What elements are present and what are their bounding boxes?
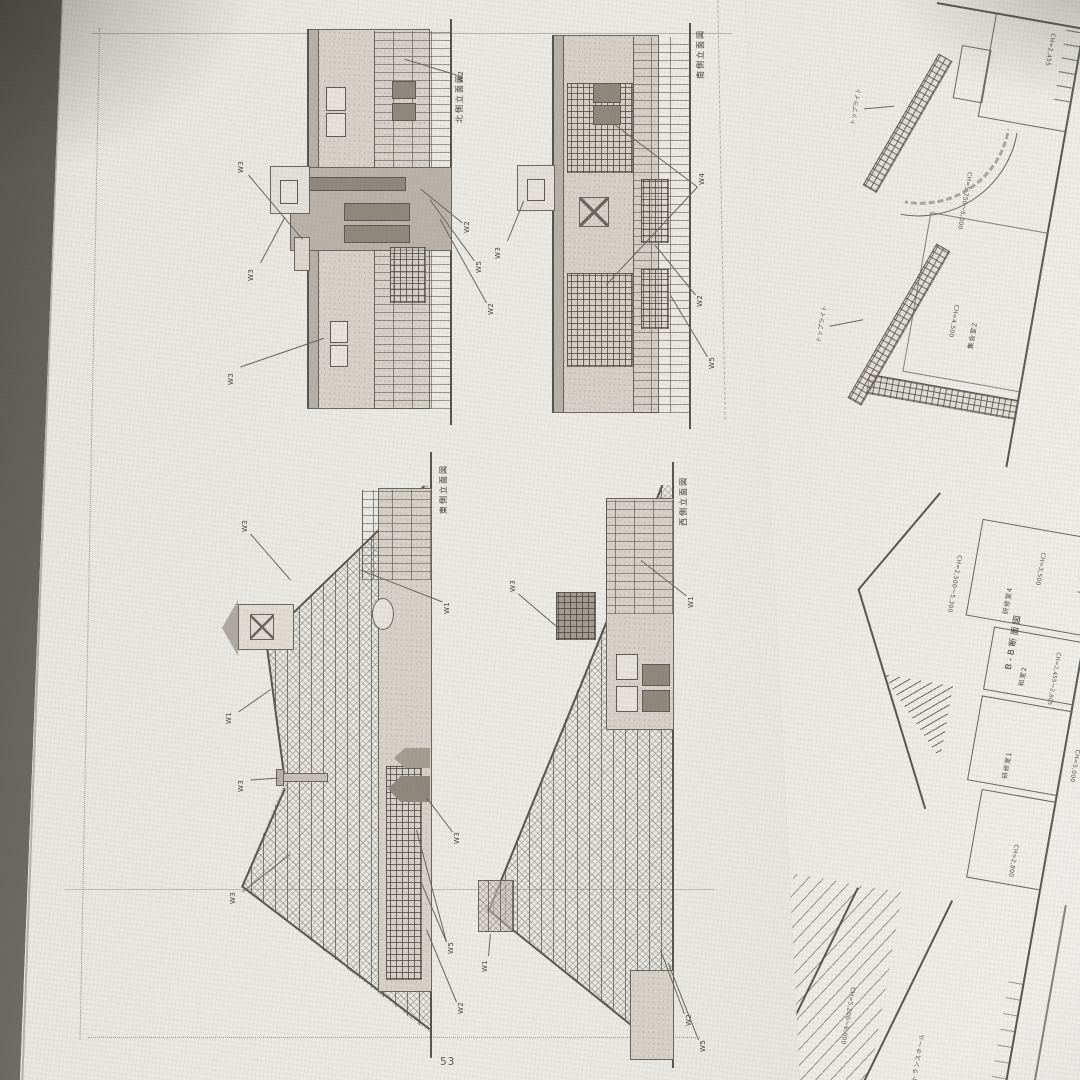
stacked-page-edge-line: [21, 0, 63, 1080]
window-band: [386, 766, 422, 980]
callout-label: W3: [238, 780, 245, 792]
page-number: 53: [440, 1056, 455, 1068]
hall-room: [902, 212, 1048, 392]
ground-line: [689, 23, 691, 429]
callout-label: W1: [444, 602, 451, 614]
callout-label: W3: [248, 269, 255, 281]
leader-line: [240, 338, 324, 368]
window-strip: [300, 177, 406, 191]
leader-line: [405, 59, 457, 76]
staircase: [869, 674, 953, 759]
gable-roof-hatched: [484, 485, 674, 1060]
margin-dotted-line-vertical: [80, 28, 100, 1040]
building-wall: [561, 35, 659, 413]
leader-line: [429, 199, 474, 261]
leader-line: [426, 930, 457, 1002]
leader-line: [640, 560, 686, 596]
window: [392, 81, 416, 99]
flat-roof-parapet: [307, 29, 319, 409]
section-drawing-a: トップライト トップライト CH=5,750〜5,000 CH=4,500 集会…: [743, 0, 1080, 463]
callout-label: W1: [226, 712, 233, 724]
elevation-title: 東側立面図: [440, 464, 448, 514]
elevation-title: 北側立面図: [456, 73, 464, 123]
footing-ticks: [986, 971, 1026, 1080]
roof-edge-line: [486, 908, 674, 1060]
window: [642, 664, 670, 686]
callout-label: W2: [488, 303, 495, 315]
window: [616, 686, 638, 712]
leader-line: [250, 778, 278, 781]
callout-label: W3: [230, 892, 237, 904]
window: [330, 321, 348, 343]
book-pages: 北側立面図 W3 W3 W3 W2 W2 W5 W2: [0, 0, 1080, 1080]
ground-line: [450, 19, 452, 425]
chimney: [478, 880, 514, 932]
leader-line: [440, 219, 487, 303]
window: [326, 113, 346, 137]
leader-line: [426, 797, 453, 832]
callout-label: W4: [699, 173, 706, 185]
penthouse: [517, 165, 555, 211]
pentagon-door: [388, 776, 430, 802]
callout-label: W2: [458, 71, 465, 83]
lower-ground-line: [1023, 905, 1066, 1080]
leader-line: [615, 125, 698, 188]
entrance-core: [290, 167, 452, 251]
leader-line: [670, 295, 708, 357]
louver-band: [633, 37, 690, 413]
callout-label: W3: [242, 520, 249, 532]
roof-edge-line: [241, 788, 285, 888]
roof-tower-gable: [222, 600, 238, 656]
vent-pipe-cap: [276, 769, 284, 786]
building-wall: [316, 29, 430, 409]
roof-edge-line: [241, 886, 430, 1030]
callout-label: トップライト: [850, 88, 862, 126]
callout-label: W3: [510, 580, 517, 592]
diamond-window: [579, 197, 609, 227]
window-grid: [641, 179, 669, 243]
leader-line: [660, 950, 685, 1014]
leader-line: [260, 217, 285, 263]
window: [616, 654, 638, 680]
callout-label: W5: [700, 1040, 707, 1052]
callout-label: W5: [476, 261, 483, 273]
elevation-title: 西側立面図: [680, 476, 688, 526]
gable-roof-hatched: [238, 485, 432, 1035]
ground-line: [430, 452, 432, 1058]
callout-label: W3: [238, 161, 245, 173]
leader-line: [248, 175, 303, 240]
room-box: [967, 695, 1073, 796]
callout-label: W2: [697, 295, 704, 307]
curtain-wall-grid: [567, 83, 633, 173]
window: [593, 83, 621, 103]
photo-of-open-book: 北側立面図 W3 W3 W3 W2 W2 W5 W2: [0, 0, 1080, 1080]
window-grid: [390, 247, 426, 303]
canopy: [294, 237, 310, 271]
dimension-text: CH=5,000: [1068, 749, 1080, 783]
roof-tower: [238, 604, 294, 650]
oval-window: [372, 598, 394, 630]
leader-line: [668, 964, 699, 1041]
elevation-drawing-east: 東側立面図 W3 W1 W3 W3 W1 W5 W2 W3: [230, 460, 460, 1050]
leader-line: [655, 245, 696, 295]
flat-roof-parapet: [552, 35, 564, 413]
callout-label: W3: [495, 247, 502, 259]
leader-line: [416, 830, 447, 942]
callout-label: W3: [454, 832, 461, 844]
leader-line: [606, 187, 698, 286]
callout-label: W5: [448, 942, 455, 954]
roof-edge-line: [265, 639, 286, 782]
callout-label: W3: [228, 373, 235, 385]
window-strip: [344, 203, 410, 221]
callout-label: W1: [482, 960, 489, 972]
louver-band: [374, 31, 451, 409]
page-crease-line: [65, 889, 715, 890]
leader-line: [250, 534, 291, 581]
curtain-wall-grid: [567, 273, 633, 367]
roof-edge-line: [265, 485, 425, 640]
sheet-frame-top-line: [92, 33, 732, 34]
window-strip: [344, 225, 410, 243]
leader-line: [507, 201, 524, 241]
roof-vent-grid: [556, 592, 596, 640]
leader-line: [488, 934, 491, 956]
leader-line: [238, 689, 271, 712]
window: [326, 87, 346, 111]
room-box: [983, 626, 1080, 705]
dimension-text: CH=2,500〜5,300: [946, 554, 962, 612]
pentagon-door: [394, 748, 430, 768]
margin-dashed-line-right: [717, 0, 725, 420]
building-wall: [606, 498, 674, 730]
leader-line: [420, 880, 447, 942]
penthouse-window: [527, 179, 545, 201]
margin-dotted-line-bottom: [88, 1037, 700, 1038]
window: [593, 105, 621, 125]
callout-label: W2: [464, 221, 471, 233]
window-grid: [641, 269, 669, 329]
elevation-drawing-west: 西側立面図 W3 W1 W1 W2 W5: [480, 470, 700, 1060]
low-wall: [630, 970, 674, 1060]
callout-label: W5: [709, 357, 716, 369]
penthouse: [270, 166, 310, 214]
leader-line: [864, 106, 894, 110]
louver-band: [606, 500, 673, 614]
leader-line: [360, 570, 442, 603]
window: [392, 103, 416, 121]
elevation-drawing-north: 北側立面図 W3 W3 W3 W2 W2 W5 W2: [224, 24, 459, 419]
callout-label: W2: [458, 1002, 465, 1014]
roof-edge-line: [488, 485, 663, 911]
penthouse-window: [280, 180, 298, 204]
ground-line: [672, 462, 674, 1068]
elevation-drawing-south: 南側立面図 W3 W4 W2 W5: [475, 25, 695, 425]
elevation-title: 南側立面図: [697, 29, 705, 79]
building-wall: [378, 488, 432, 992]
vent-pipe: [280, 773, 328, 782]
window: [642, 690, 670, 712]
callout-label: トップライト: [816, 305, 828, 343]
callout-label: W2: [686, 1014, 693, 1026]
louver-band: [362, 490, 431, 580]
callout-label: W1: [688, 596, 695, 608]
room-label: エントランスホール: [909, 1033, 926, 1080]
leader-line: [518, 594, 560, 631]
tower-x-window: [250, 614, 274, 640]
leader-line: [830, 319, 864, 326]
window: [330, 345, 348, 367]
leader-line: [242, 854, 290, 893]
leader-line: [420, 189, 463, 224]
roof-line: [858, 492, 941, 590]
